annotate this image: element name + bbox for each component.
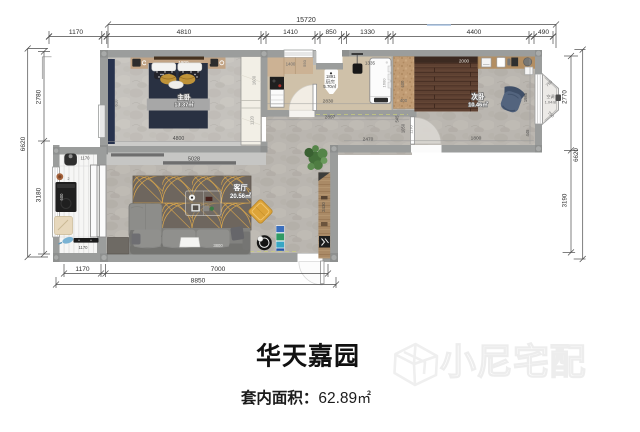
svg-text:1170: 1170 bbox=[410, 125, 414, 133]
svg-text:5028: 5028 bbox=[188, 157, 200, 163]
svg-text:6620: 6620 bbox=[20, 136, 27, 151]
svg-text:1050: 1050 bbox=[401, 123, 406, 133]
svg-text:445: 445 bbox=[525, 129, 530, 137]
svg-text:1800: 1800 bbox=[471, 136, 482, 142]
svg-text:1600: 1600 bbox=[382, 78, 387, 88]
svg-text:2000: 2000 bbox=[459, 58, 470, 63]
svg-text:7000: 7000 bbox=[211, 266, 226, 273]
svg-text:1170: 1170 bbox=[78, 245, 88, 250]
svg-text:1170: 1170 bbox=[69, 29, 84, 36]
svg-text:545: 545 bbox=[395, 115, 400, 123]
svg-text:1170: 1170 bbox=[80, 156, 90, 161]
svg-text:3190: 3190 bbox=[562, 193, 569, 207]
svg-text:华天嘉园: 华天嘉园 bbox=[256, 342, 360, 371]
svg-text:2430: 2430 bbox=[321, 202, 326, 212]
svg-text:1335: 1335 bbox=[365, 61, 376, 66]
svg-text:15720: 15720 bbox=[296, 17, 316, 24]
svg-text:3800: 3800 bbox=[213, 243, 223, 248]
svg-text:套内面积：62.89㎡: 套内面积：62.89㎡ bbox=[241, 388, 371, 407]
svg-text:10.46㎡: 10.46㎡ bbox=[468, 101, 488, 109]
svg-text:850: 850 bbox=[325, 29, 336, 36]
svg-text:20.56㎡: 20.56㎡ bbox=[230, 192, 251, 200]
svg-text:空调: 空调 bbox=[547, 93, 555, 99]
svg-text:1400: 1400 bbox=[286, 62, 296, 67]
svg-text:1600: 1600 bbox=[252, 75, 257, 85]
svg-text:490: 490 bbox=[538, 29, 549, 36]
svg-text:小尼宅配: 小尼宅配 bbox=[440, 341, 586, 382]
svg-text:2830: 2830 bbox=[323, 99, 334, 105]
svg-text:1891: 1891 bbox=[326, 74, 336, 79]
svg-text:1330: 1330 bbox=[360, 29, 375, 36]
svg-text:次卧: 次卧 bbox=[471, 92, 485, 101]
svg-text:5.70㎡: 5.70㎡ bbox=[323, 83, 337, 89]
svg-text:2780: 2780 bbox=[36, 89, 43, 104]
svg-text:1985: 1985 bbox=[523, 92, 528, 102]
svg-text:2897: 2897 bbox=[325, 115, 336, 121]
svg-text:1.04㎡: 1.04㎡ bbox=[545, 99, 557, 105]
svg-text:13.37㎡: 13.37㎡ bbox=[174, 100, 194, 108]
svg-text:1120: 1120 bbox=[250, 115, 255, 125]
svg-text:2: 2 bbox=[68, 177, 70, 181]
svg-text:6620: 6620 bbox=[573, 148, 580, 162]
svg-text:2470: 2470 bbox=[363, 137, 374, 143]
svg-text:主卧: 主卧 bbox=[178, 92, 192, 101]
svg-text:1170: 1170 bbox=[75, 266, 90, 273]
svg-text:3180: 3180 bbox=[36, 187, 43, 202]
svg-text:600: 600 bbox=[400, 80, 405, 88]
svg-text:1410: 1410 bbox=[283, 29, 298, 36]
svg-text:客厅: 客厅 bbox=[233, 183, 248, 192]
svg-text:4400: 4400 bbox=[467, 29, 482, 36]
svg-text:2770: 2770 bbox=[562, 90, 569, 104]
svg-text:8850: 8850 bbox=[191, 278, 206, 285]
svg-text:610: 610 bbox=[114, 99, 119, 107]
svg-text:4800: 4800 bbox=[173, 136, 185, 142]
svg-text:550: 550 bbox=[302, 59, 307, 66]
svg-text:400: 400 bbox=[400, 98, 408, 103]
svg-text:4810: 4810 bbox=[177, 29, 192, 36]
svg-text:600: 600 bbox=[59, 193, 64, 201]
